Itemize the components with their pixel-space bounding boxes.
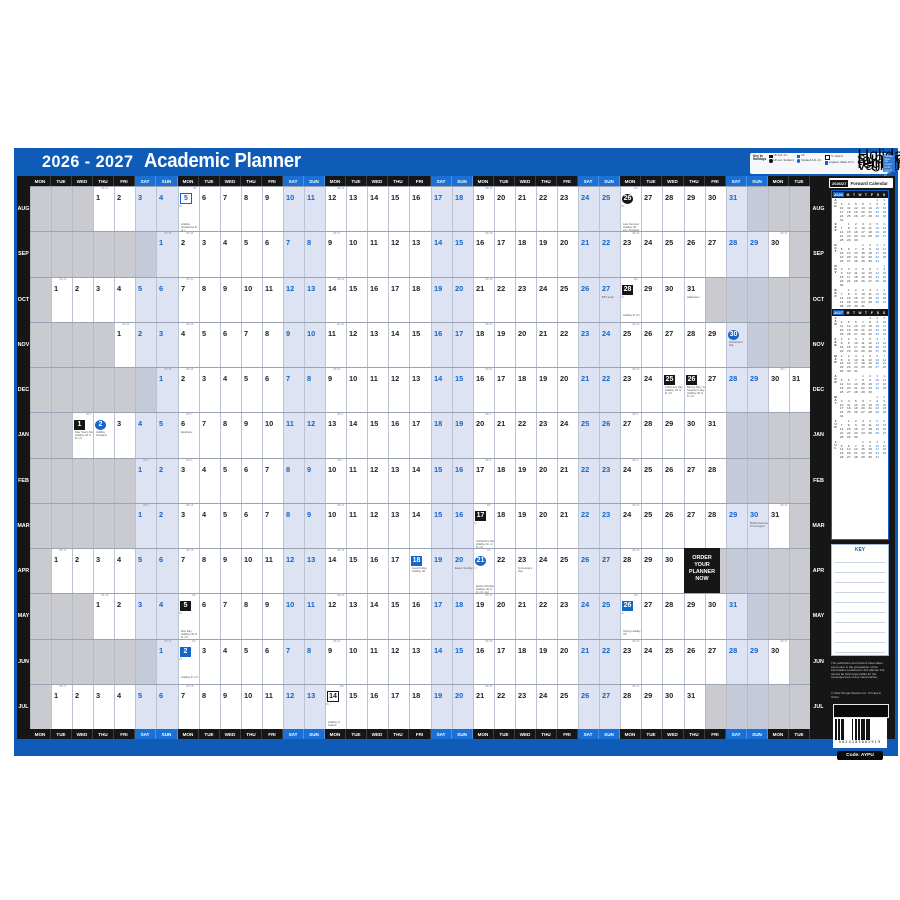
day-cell: 14 xyxy=(367,187,388,231)
date-number: 25 xyxy=(600,600,610,609)
legend-item: UK exc. Scotland xyxy=(769,159,793,162)
date-number: 8 xyxy=(200,691,206,700)
day-cell: 8 xyxy=(199,549,220,593)
empty-cell xyxy=(135,368,156,412)
empty-cell xyxy=(30,504,51,548)
day-cell: 30 xyxy=(684,413,705,458)
date-number: 2 xyxy=(73,555,79,564)
day-cell: 11 xyxy=(367,368,388,412)
date-number: 26 xyxy=(663,465,673,474)
day-cell: 18 xyxy=(409,685,431,729)
day-cell: 30 xyxy=(705,187,726,231)
day-header-cell: WED xyxy=(220,729,241,739)
day-cell: 14 xyxy=(431,640,452,684)
week-marker: Wk 49 xyxy=(186,368,193,371)
date-number: 24 xyxy=(537,284,547,293)
date-number: 7 xyxy=(263,510,269,519)
date-number: 7 xyxy=(200,419,206,428)
date-number: 18 xyxy=(453,193,463,202)
day-header-cell: MON xyxy=(30,729,51,739)
date-number: 11 xyxy=(347,510,357,519)
day-header-cell: WED xyxy=(662,176,684,186)
mini-month-jul: JUL1234567891011121314151617181920212223… xyxy=(833,441,888,461)
date-number: 19 xyxy=(453,419,463,428)
day-header-cell: THU xyxy=(241,176,262,186)
date-number: 3 xyxy=(115,419,121,428)
date-number: 17 xyxy=(432,193,442,202)
date-number: 27 xyxy=(642,193,652,202)
date-number: 24 xyxy=(600,329,610,338)
date-number: 5 xyxy=(221,510,227,519)
day-cell: 5 xyxy=(199,323,220,367)
day-cell: 22 xyxy=(578,459,599,503)
day-header-cell: WED xyxy=(515,729,536,739)
date-number: 14 xyxy=(326,555,336,564)
date-number: 14 xyxy=(326,284,336,293)
day-cell: 16 xyxy=(367,278,388,322)
week-marker: Wk 20 xyxy=(337,594,344,597)
key-line xyxy=(835,593,885,603)
mini-month-grid: 1234567891011121314151617181920212223242… xyxy=(838,265,888,288)
day-cell: 20 xyxy=(557,232,578,277)
day-cell: 2 xyxy=(135,323,156,367)
date-number: 7 xyxy=(242,329,248,338)
day-cell: 24 xyxy=(536,278,557,322)
month-label-apr: APR xyxy=(810,548,827,593)
day-cell: 29 xyxy=(684,594,705,639)
day-cell: 28 xyxy=(641,413,662,458)
week-marker: Wk 15 xyxy=(186,549,193,552)
empty-cell xyxy=(768,594,789,639)
date-number: 6 xyxy=(263,646,269,655)
day-cell: 21 xyxy=(494,413,515,458)
date-number: 5 xyxy=(242,646,248,655)
date-number: 24 xyxy=(558,419,568,428)
date-number: 25 xyxy=(642,510,652,519)
day-cell: 26 xyxy=(599,413,620,458)
day-cell: 24 xyxy=(641,368,662,412)
mini-month-grid: 1234567891011121314151617181920212223242… xyxy=(838,289,888,309)
day-header-cell: SUN xyxy=(156,729,178,739)
empty-cell xyxy=(114,640,135,684)
empty-cell xyxy=(30,368,51,412)
planner-title: Academic Planner xyxy=(144,150,301,173)
date-number: 4 xyxy=(157,193,163,202)
empty-cell xyxy=(30,413,51,458)
date-number: 19 xyxy=(516,465,526,474)
day-cell: 4 xyxy=(114,278,135,322)
day-cell: 7 xyxy=(283,640,304,684)
date-number: 26 xyxy=(685,238,695,247)
legend-item: England, Wales & N.I. xyxy=(825,161,855,164)
day-cell: 29 xyxy=(641,278,662,322)
day-header-cell: TUE xyxy=(494,176,515,186)
date-number: 21 xyxy=(537,329,547,338)
date-number: 7 xyxy=(221,193,227,202)
day-cell: 3 xyxy=(199,368,220,412)
date-number: 29 xyxy=(642,284,652,293)
date-number: 31 xyxy=(727,600,737,609)
mini-month-apr: APR1234567891011121314151617181920212223… xyxy=(833,375,888,395)
date-number: 9 xyxy=(221,555,227,564)
date-number: 20 xyxy=(558,646,568,655)
day-cell: 9Wk 50 xyxy=(325,368,346,412)
day-cell: 6 xyxy=(262,232,283,277)
date-number: 30 xyxy=(663,691,673,700)
day-cell: 31Wk 14 xyxy=(768,504,789,548)
day-cell: 12Wk 33 xyxy=(325,187,346,231)
mini-month-grid: 1234567891011121314151617181920212223242… xyxy=(838,223,888,243)
barcode: 5024103002919 xyxy=(833,718,887,748)
date-number: 8 xyxy=(263,329,269,338)
month-label-feb: FEB xyxy=(810,458,827,503)
day-cell: 29 xyxy=(747,368,768,412)
date-number: 15 xyxy=(347,691,357,700)
empty-cell xyxy=(768,187,789,231)
mini-month-grid: 1234567891011121314151617181920212223242… xyxy=(838,396,888,419)
mini-month-grid: 1234567891011121314151617181920212223242… xyxy=(838,338,888,354)
day-cell: 23Wk 26 xyxy=(620,640,641,684)
date-number: 13 xyxy=(389,465,399,474)
day-cell: 1Wk 48 xyxy=(156,368,178,412)
empty-cell xyxy=(747,459,768,503)
date-number: 11 xyxy=(347,465,357,474)
date-number: 5 xyxy=(242,238,248,247)
date-number: 3 xyxy=(94,555,100,564)
day-cell: 4 xyxy=(199,504,220,548)
day-header-cell: SUN xyxy=(452,176,473,186)
day-header-cell: WED xyxy=(72,176,93,186)
date-number: 30 xyxy=(685,419,695,428)
legend-item-label: N. Ireland xyxy=(831,156,842,159)
date-number: 21 xyxy=(579,646,589,655)
date-number: 4 xyxy=(136,419,142,428)
day-cell: 2Wk 23Holiday R. of I. xyxy=(178,640,199,684)
black-circle-chip-icon xyxy=(769,159,772,162)
day-header-cell: SAT xyxy=(431,729,452,739)
empty-cell xyxy=(789,323,810,367)
empty-cell xyxy=(51,504,72,548)
day-cell: 17Wk 12St Patrick's Day Holiday N.I. & R… xyxy=(473,504,494,548)
day-cell: 11 xyxy=(283,413,304,458)
date-number: 4 xyxy=(200,510,206,519)
date-number: 25 xyxy=(621,329,631,338)
day-cell: 30 xyxy=(662,549,684,593)
week-marker: Wk 38 xyxy=(485,232,492,235)
day-cell: 3 xyxy=(156,323,178,367)
day-cell: 30Wk 1 xyxy=(768,368,789,412)
legend-footnote: Holiday dates are correct at the time of… xyxy=(883,155,895,172)
day-header-cell: WED xyxy=(662,729,684,739)
date-number: 7 xyxy=(284,238,290,247)
holiday-note: Holiday R. of I. xyxy=(179,676,199,679)
day-cell: 24 xyxy=(641,232,662,277)
day-cell: 5 xyxy=(135,685,156,729)
date-number: 29 xyxy=(748,374,758,383)
empty-cell xyxy=(747,413,768,458)
day-header-cell: WED xyxy=(220,176,241,186)
date-number: 7 xyxy=(284,646,290,655)
day-cell: 14 xyxy=(409,504,431,548)
day-header-cell: THU xyxy=(536,176,557,186)
date-number: 18 xyxy=(474,329,484,338)
date-number: 7 xyxy=(179,555,185,564)
empty-cell xyxy=(30,640,51,684)
date-number: 29 xyxy=(706,329,716,338)
date-number: 1 xyxy=(52,284,58,293)
empty-cell xyxy=(51,459,72,503)
week-marker: Wk 1 xyxy=(86,413,92,416)
date-number: 11 xyxy=(263,691,273,700)
day-cell: 12 xyxy=(283,278,304,322)
day-cell: 8 xyxy=(262,323,283,367)
date-number: 24 xyxy=(642,238,652,247)
day-cell: 15 xyxy=(346,685,367,729)
date-number: 27 xyxy=(642,600,652,609)
day-header-cell: MON xyxy=(178,729,199,739)
day-cell: 2 xyxy=(72,549,93,593)
date-number: 11 xyxy=(305,600,315,609)
day-header-cell: SAT xyxy=(578,729,599,739)
week-marker: Wk 50 xyxy=(333,368,340,371)
empty-cell xyxy=(726,549,747,593)
day-cell: 4 xyxy=(199,459,220,503)
day-cell: 12 xyxy=(388,640,409,684)
week-marker: Wk 3 xyxy=(337,413,343,416)
holiday-note: Boxing Day / St Stephen's Day Holiday UK… xyxy=(685,386,705,398)
date-number: 15 xyxy=(432,465,442,474)
date-number: 15 xyxy=(347,284,357,293)
day-cell: 18 xyxy=(494,459,515,503)
date-number: 30 xyxy=(769,646,779,655)
wall-planner-poster: 2026 - 2027 Academic Planner Key to Holi… xyxy=(14,148,898,756)
day-cell: 31 xyxy=(726,187,747,231)
date-number: 12 xyxy=(389,238,399,247)
day-cell: 6 xyxy=(262,640,283,684)
header-bar: 2026 - 2027 Academic Planner Key to Holi… xyxy=(16,150,896,176)
day-cell: 13Wk 3 xyxy=(325,413,346,458)
date-number: 24 xyxy=(579,600,589,609)
legend-item: Scotland & R. of I. xyxy=(797,159,822,162)
day-cell: 5Wk 32Holiday Scotland & R. of I. xyxy=(178,187,199,231)
date-number: 9 xyxy=(221,284,227,293)
day-header-cell: FRI xyxy=(705,176,726,186)
date-number: 11 xyxy=(263,284,273,293)
day-header-cell: SAT xyxy=(578,176,599,186)
date-number: 25 xyxy=(663,646,673,655)
holiday-note: British Summer Time begins xyxy=(748,522,768,528)
empty-cell xyxy=(789,413,810,458)
day-cell: 27 xyxy=(641,187,662,231)
day-cell: 12 xyxy=(283,549,304,593)
day-cell: 12 xyxy=(367,504,388,548)
date-number: 29 xyxy=(727,510,737,519)
date-number: 17 xyxy=(432,600,442,609)
date-number: 26 xyxy=(642,329,652,338)
day-cell: 23Wk 39 xyxy=(620,232,641,277)
day-cell: 11 xyxy=(346,459,367,503)
legend-column: N. IrelandEngland, Wales & N.I. xyxy=(825,155,855,172)
date-number: 23 xyxy=(516,691,526,700)
month-label-jul: JUL xyxy=(810,684,827,729)
month-label-oct: OCT xyxy=(17,277,30,322)
day-cell: 23 xyxy=(557,187,578,231)
forward-calendar-years-tab: 2026/27 xyxy=(830,180,848,187)
mini-month-nov: NOV1234567891011121314151617181920212223… xyxy=(833,265,888,288)
date-number: 11 xyxy=(263,555,273,564)
date-number: 13 xyxy=(389,510,399,519)
day-cell: 17 xyxy=(388,278,409,322)
day-cell: 8 xyxy=(199,685,220,729)
empty-cell xyxy=(72,187,93,231)
day-cell: 17 xyxy=(494,640,515,684)
day-cell: 20 xyxy=(452,278,473,322)
key-line xyxy=(835,643,885,653)
date-number: 28 xyxy=(685,329,695,338)
date-number: 12 xyxy=(368,465,378,474)
date-number: 22 xyxy=(516,419,526,428)
week-marker: Wk 33 xyxy=(337,187,344,190)
day-cell: 23St George's Day xyxy=(515,549,536,593)
day-cell: 9Wk 24 xyxy=(325,640,346,684)
empty-cell xyxy=(726,413,747,458)
month-row-oct: 1Wk 40234567Wk 41891011121314Wk 42151617… xyxy=(30,277,810,322)
date-number: 28 xyxy=(727,646,737,655)
date-number: 27 xyxy=(600,555,610,564)
day-cell: 16 xyxy=(409,594,431,639)
day-cell: 22 xyxy=(494,278,515,322)
holiday-badge: 5 xyxy=(180,601,191,611)
day-cell: 28Wk 18 xyxy=(620,549,641,593)
week-marker: Wk 25 xyxy=(485,640,492,643)
day-header-cell: MON xyxy=(473,729,494,739)
date-number: 31 xyxy=(790,374,800,383)
day-header-cell: THU xyxy=(684,176,705,186)
date-number: 21 xyxy=(558,510,568,519)
day-cell: 8 xyxy=(304,232,325,277)
date-number: 19 xyxy=(495,329,505,338)
date-number: 6 xyxy=(157,284,163,293)
day-cell: 18 xyxy=(452,594,473,639)
month-label-jun: JUN xyxy=(17,639,30,684)
day-header-cell: SAT xyxy=(135,176,156,186)
day-cell: 16Wk 25 xyxy=(473,640,494,684)
day-cell: 19Wk 21 xyxy=(473,594,494,639)
holiday-note: Epiphany xyxy=(179,431,199,434)
day-cell: 9 xyxy=(304,459,325,503)
legend-column: UK & R. of I.UK exc. Scotland xyxy=(769,155,793,172)
week-marker: Wk 40 xyxy=(59,278,66,281)
date-number: 25 xyxy=(642,465,652,474)
day-cell: 16 xyxy=(409,187,431,231)
day-header-row-top: MONTUEWEDTHUFRISATSUNMONTUEWEDTHUFRISATS… xyxy=(30,176,810,186)
day-cell: 10 xyxy=(262,413,283,458)
date-number: 11 xyxy=(368,646,378,655)
day-cell: 28 xyxy=(684,323,705,367)
day-header-cell: TUE xyxy=(51,176,72,186)
day-cell: 15 xyxy=(388,187,409,231)
day-header-cell: SUN xyxy=(599,176,620,186)
empty-cell xyxy=(789,549,810,593)
holiday-note: Late Summer Holiday UK exc. Scotland xyxy=(621,223,641,231)
day-cell: 19 xyxy=(536,368,557,412)
holiday-note: Spring Holiday UK xyxy=(621,630,641,636)
day-cell: 4 xyxy=(114,549,135,593)
date-number: 17 xyxy=(410,419,420,428)
date-number: 1 xyxy=(94,193,100,202)
empty-cell xyxy=(747,278,768,322)
date-number: 20 xyxy=(495,600,505,609)
day-header-cell: SUN xyxy=(747,729,768,739)
forward-year-bar: 2026MTWTFSS xyxy=(832,191,888,198)
day-cell: 25Christmas Day Holiday UK & R. of I. xyxy=(662,368,684,412)
mini-month-jan: JAN1234567891011121314151617181920212223… xyxy=(833,317,888,337)
day-cell: 13 xyxy=(346,187,367,231)
day-cell: 28Wk 31 xyxy=(620,685,641,729)
day-cell: 11 xyxy=(367,232,388,277)
side-panel: 2026/27 Forward Calendar 2026MTWTFSSAUG1… xyxy=(827,176,895,739)
day-cell: 13 xyxy=(304,685,325,729)
date-number: 7 xyxy=(179,284,185,293)
mini-month-grid: 1234567891011121314151617181920212223242… xyxy=(838,199,888,222)
day-cell: 27 xyxy=(705,368,726,412)
date-number: 21 xyxy=(474,691,484,700)
date-number: 16 xyxy=(410,193,420,202)
date-number: 3 xyxy=(136,600,142,609)
date-number: 23 xyxy=(621,374,631,383)
day-cell: 6 xyxy=(241,459,262,503)
day-cell: 12 xyxy=(283,685,304,729)
empty-cell xyxy=(114,368,135,412)
day-cell: 1Wk 31 xyxy=(93,187,114,231)
day-cell: 13 xyxy=(388,504,409,548)
day-cell: 28 xyxy=(726,640,747,684)
date-number: 16 xyxy=(453,510,463,519)
week-marker: Wk 1 xyxy=(780,368,786,371)
holiday-badge: 2 xyxy=(95,420,106,430)
date-number: 26 xyxy=(579,691,589,700)
date-number: 15 xyxy=(347,555,357,564)
month-label-oct: OCT xyxy=(810,277,827,322)
date-number: 3 xyxy=(200,238,206,247)
empty-cell xyxy=(768,278,789,322)
date-number: 13 xyxy=(305,691,315,700)
day-cell: 26Boxing Day / St Stephen's Day Holiday … xyxy=(684,368,705,412)
day-cell: 8 xyxy=(220,413,241,458)
day-cell: 7 xyxy=(220,187,241,231)
date-number: 3 xyxy=(179,465,185,474)
date-number: 23 xyxy=(579,329,589,338)
day-header-cell: SAT xyxy=(431,176,452,186)
day-cell: 30 xyxy=(705,594,726,639)
date-number: 28 xyxy=(663,600,673,609)
week-marker: Wk 10 xyxy=(186,504,193,507)
date-number: 4 xyxy=(115,691,121,700)
empty-cell xyxy=(114,504,135,548)
day-cell: 29 xyxy=(747,232,768,277)
empty-cell xyxy=(51,232,72,277)
day-cell: 10 xyxy=(304,323,325,367)
date-number: 30 xyxy=(748,510,758,519)
day-cell: 10 xyxy=(346,640,367,684)
holiday-note: Holiday R. of I. xyxy=(621,314,641,317)
key-line xyxy=(835,603,885,613)
empty-cell xyxy=(726,685,747,729)
date-number: 22 xyxy=(495,284,505,293)
date-number: 10 xyxy=(347,374,357,383)
day-cell: 22 xyxy=(599,232,620,277)
day-cell: 15 xyxy=(409,323,431,367)
